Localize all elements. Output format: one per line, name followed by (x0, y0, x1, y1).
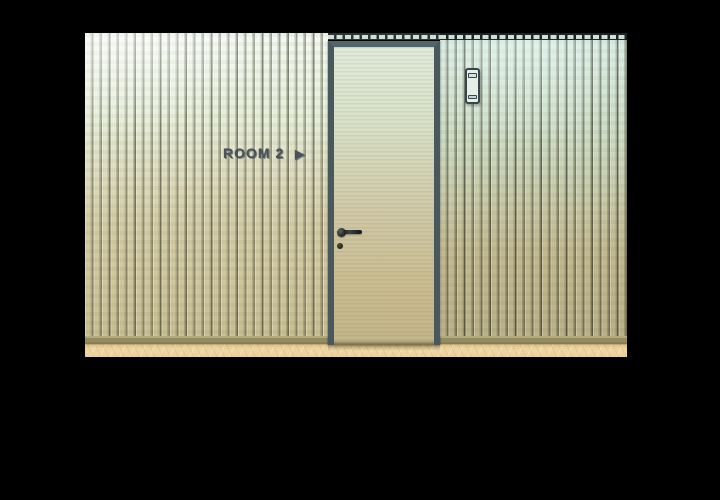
wall-left-panel (85, 33, 328, 336)
door-floor-shadow (328, 344, 440, 351)
slat-top-band-door (328, 33, 440, 40)
slat-top-notches (440, 35, 627, 39)
door-frame (328, 41, 440, 345)
door-handle-lever[interactable] (344, 230, 362, 234)
scene-viewport: ROOM 2 ▶ (85, 33, 627, 357)
card-reader-slot (468, 95, 477, 99)
room-sign: ROOM 2 ▶ (223, 145, 305, 161)
card-reader[interactable] (465, 68, 480, 104)
letterbox-background: ROOM 2 ▶ (0, 0, 720, 500)
slat-top-band-right (440, 33, 627, 40)
slat-top-notches (328, 35, 440, 39)
card-reader-display (468, 73, 477, 78)
baseboard-left (85, 336, 328, 344)
arrow-right-icon: ▶ (295, 147, 305, 161)
room-sign-label: ROOM 2 (223, 145, 284, 161)
baseboard-right (440, 336, 627, 344)
wall-left-texture (85, 33, 328, 336)
door-lock-keyhole[interactable] (337, 243, 343, 249)
